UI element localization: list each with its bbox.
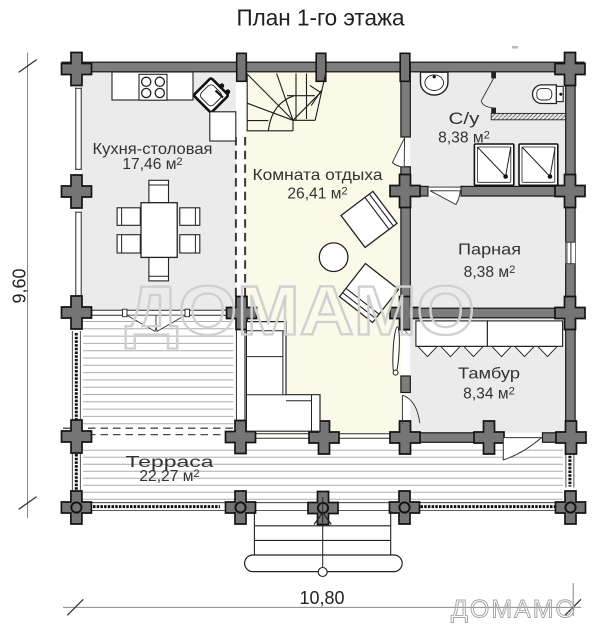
- svg-text:9,60: 9,60: [10, 268, 30, 303]
- svg-text:26,41 м2: 26,41 м2: [287, 185, 347, 202]
- svg-text:22,27 м2: 22,27 м2: [139, 468, 199, 485]
- svg-text:8,38 м2: 8,38 м2: [438, 130, 490, 147]
- svg-text:10,80: 10,80: [299, 588, 344, 608]
- svg-text:План 1-го этажа: План 1-го этажа: [237, 5, 406, 31]
- svg-text:Парная: Парная: [458, 242, 521, 259]
- svg-text:8,34 м2: 8,34 м2: [463, 386, 515, 403]
- svg-text:ДОМАМО: ДОМАМО: [125, 272, 475, 350]
- svg-text:Тамбур: Тамбур: [458, 366, 520, 383]
- svg-text:Комната отдыха: Комната отдыха: [253, 167, 383, 184]
- svg-text:17,46 м2: 17,46 м2: [122, 156, 182, 173]
- svg-text:С/у: С/у: [449, 110, 481, 128]
